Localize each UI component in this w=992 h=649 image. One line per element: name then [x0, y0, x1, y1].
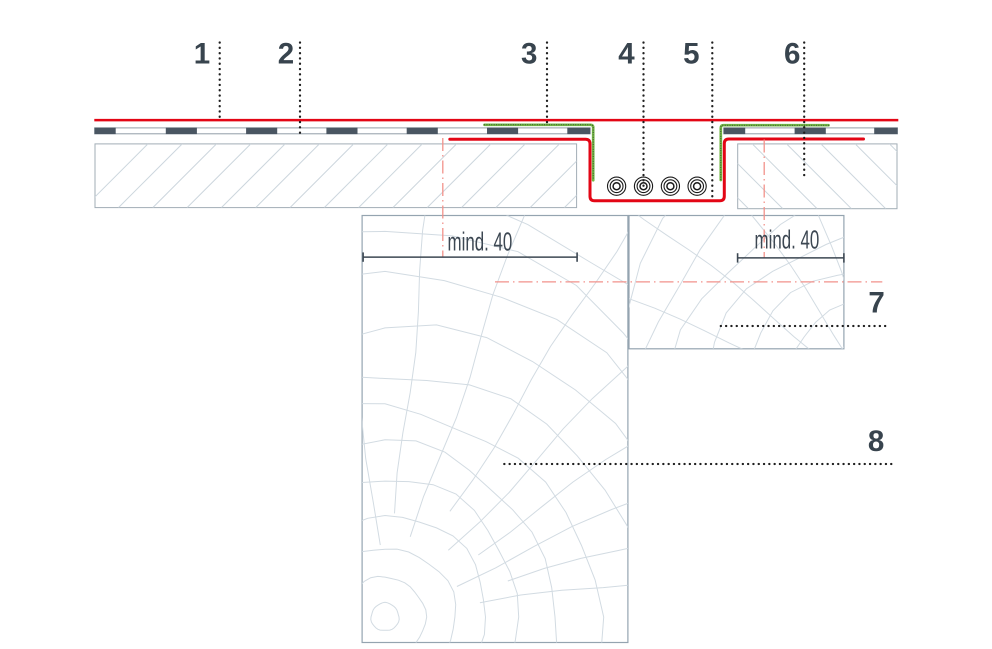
- svg-text:5: 5: [683, 37, 699, 70]
- svg-text:3: 3: [521, 37, 537, 70]
- svg-text:2: 2: [278, 37, 294, 70]
- svg-text:mind. 40: mind. 40: [448, 227, 513, 257]
- svg-text:7: 7: [868, 287, 884, 320]
- svg-text:4: 4: [618, 37, 635, 70]
- svg-text:1: 1: [194, 37, 210, 70]
- svg-text:6: 6: [784, 37, 800, 70]
- svg-text:8: 8: [868, 425, 884, 458]
- svg-text:mind. 40: mind. 40: [755, 225, 820, 255]
